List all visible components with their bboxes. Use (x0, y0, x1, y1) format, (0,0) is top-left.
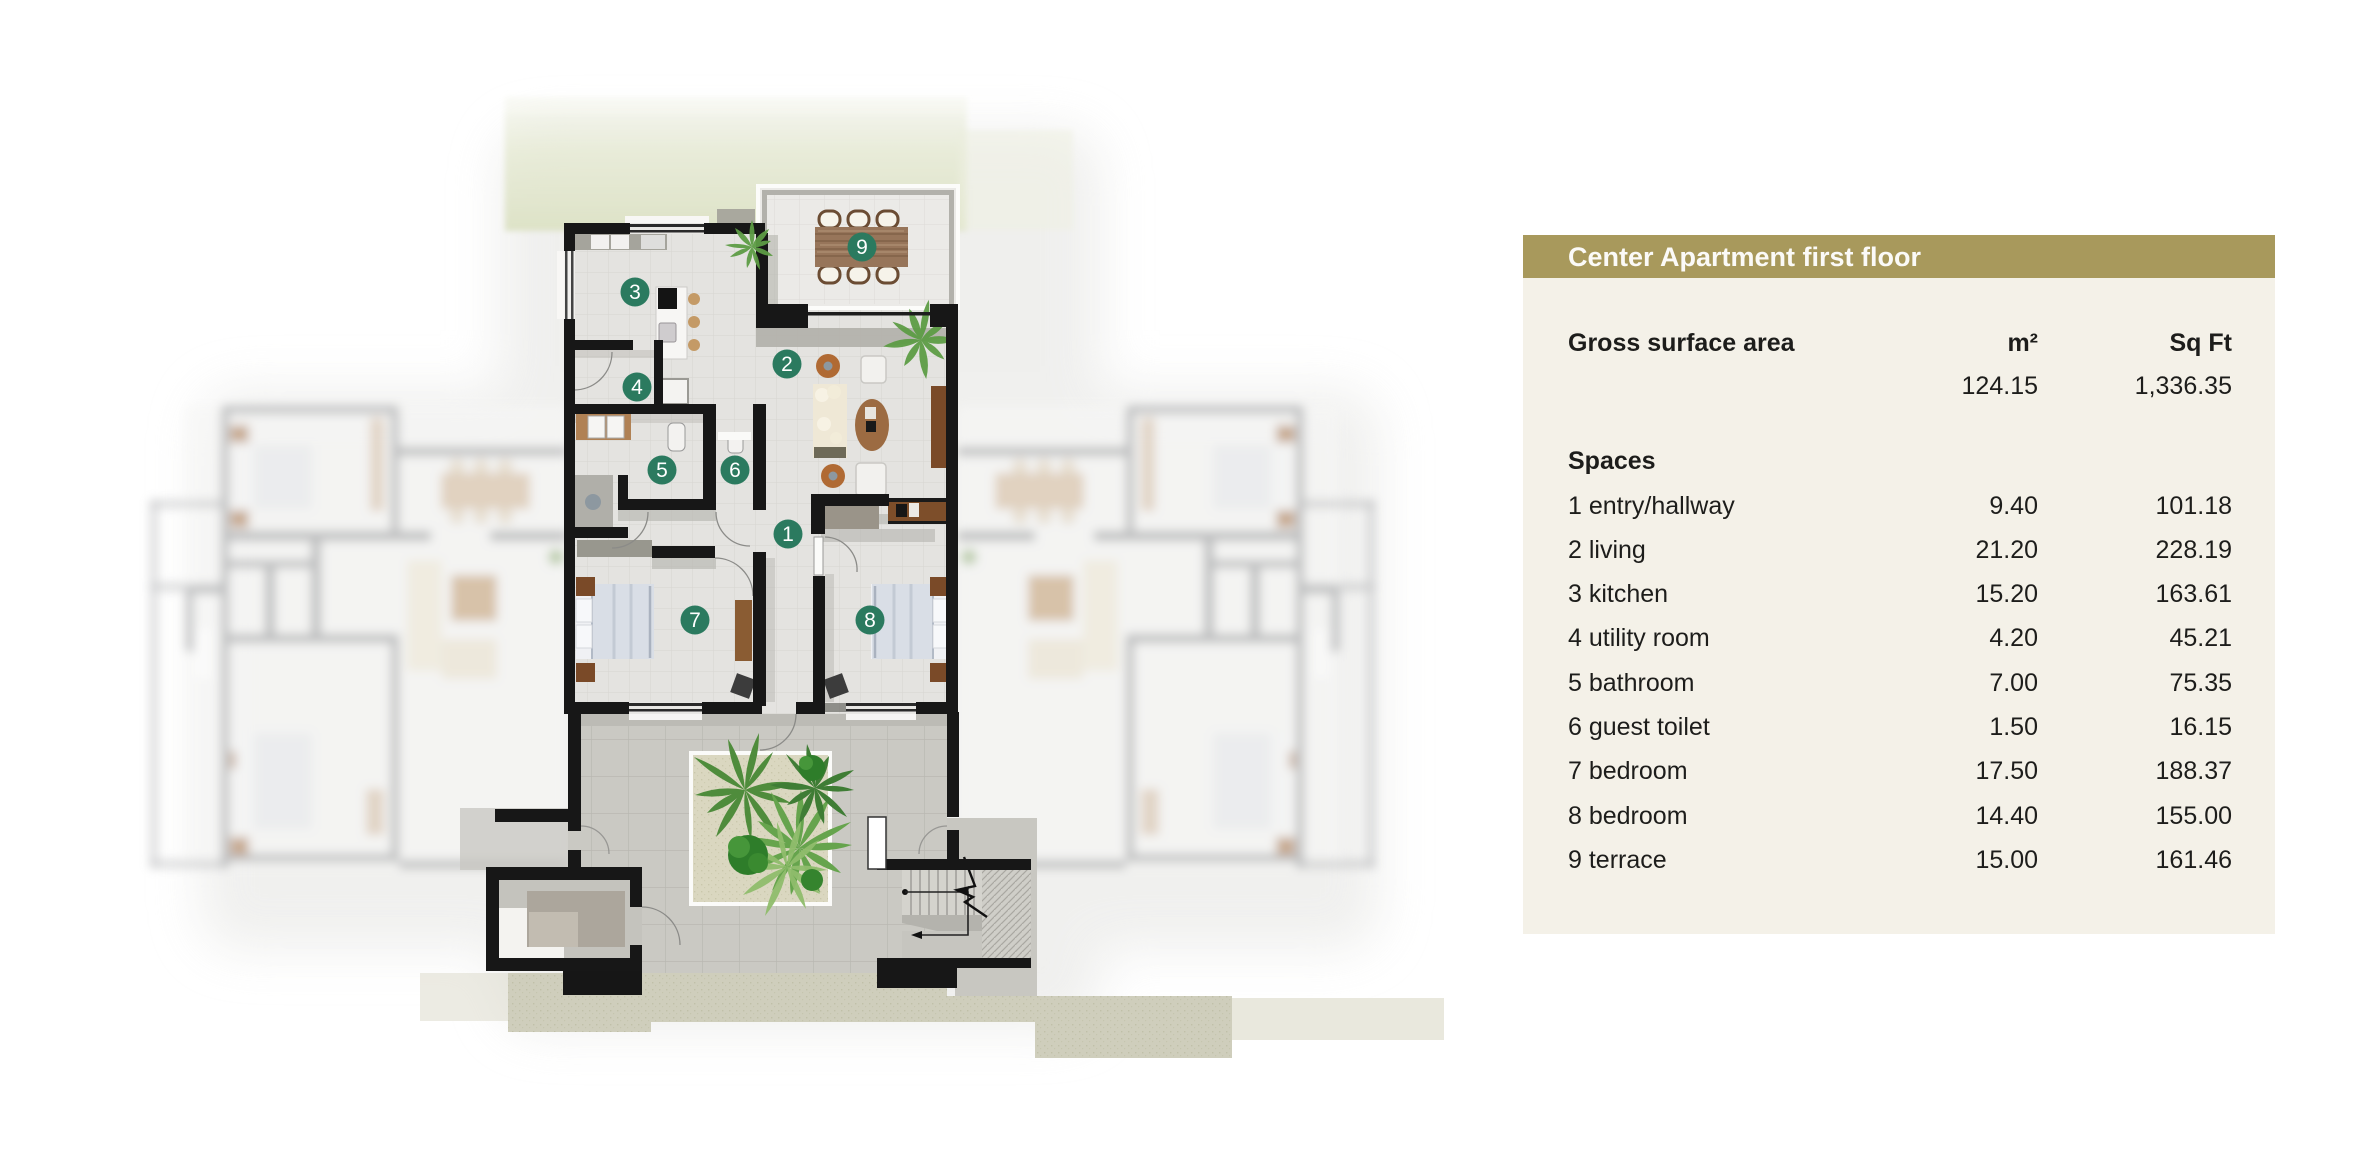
svg-text:9: 9 (856, 236, 868, 259)
svg-text:4: 4 (631, 376, 643, 399)
svg-text:2: 2 (781, 353, 793, 376)
svg-text:3: 3 (629, 281, 641, 304)
svg-text:1: 1 (782, 523, 794, 546)
svg-text:6: 6 (729, 459, 741, 482)
svg-text:5: 5 (656, 459, 668, 482)
svg-text:8: 8 (864, 609, 876, 632)
svg-text:7: 7 (689, 609, 701, 632)
